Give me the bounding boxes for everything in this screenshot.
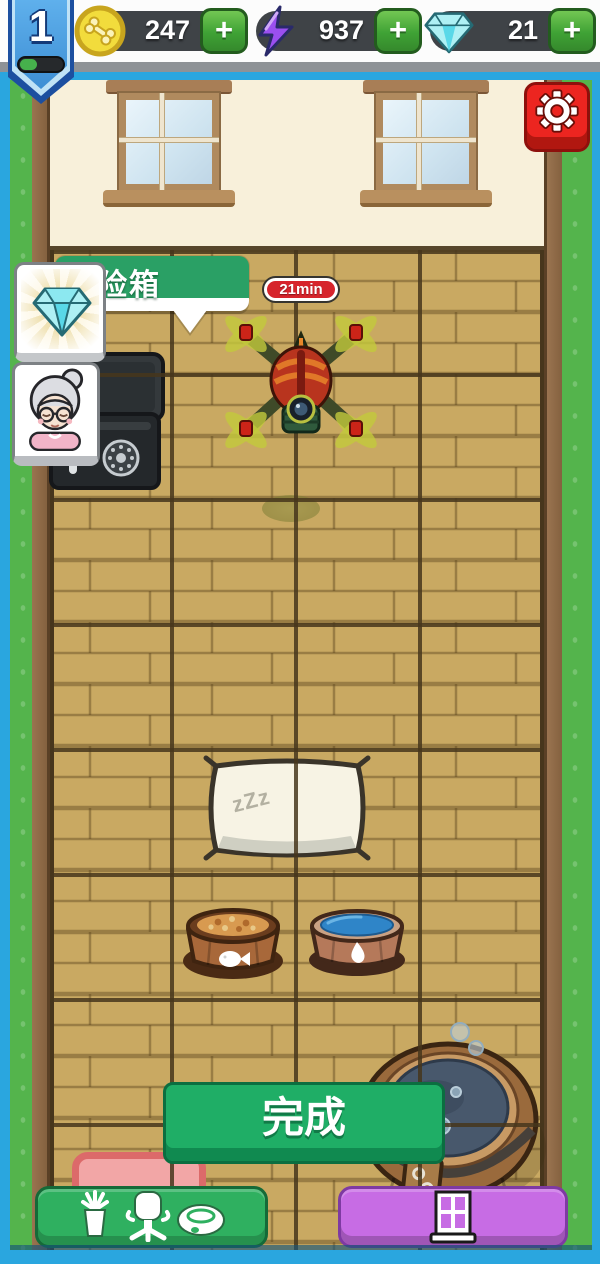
- frame-edge-bottom: [0, 1250, 600, 1264]
- food-bowl[interactable]: [180, 895, 286, 981]
- level-badge: 1: [8, 0, 74, 104]
- reward-card: [14, 262, 106, 362]
- wall-window-left: [113, 80, 225, 206]
- plant-icon: [83, 1192, 107, 1236]
- game-screen: zZz: [0, 0, 600, 1264]
- coins-value: 247: [145, 15, 190, 46]
- window-mullion: [376, 137, 476, 143]
- water-bowl[interactable]: [306, 898, 408, 978]
- grass-right: [562, 80, 592, 1250]
- safe-dial: [104, 441, 138, 475]
- gem-icon: [424, 9, 474, 55]
- level-value: 1: [8, 2, 74, 52]
- frame-edge-right: [592, 72, 600, 1264]
- bone-coin-icon: [74, 5, 126, 57]
- timer-badge-label: 21min: [267, 281, 335, 298]
- window-sill: [103, 190, 235, 207]
- complete-button[interactable]: 完成: [163, 1082, 445, 1164]
- timer-badge: 21min: [262, 276, 340, 303]
- window-lintel: [363, 80, 489, 94]
- house-wall-post-left: [32, 80, 50, 1250]
- window-sill: [360, 190, 492, 207]
- complete-button-label: 完成: [262, 1094, 346, 1141]
- window-icon: [429, 1190, 477, 1244]
- gems-counter: 21 +: [430, 11, 594, 51]
- wallpaper-button[interactable]: [338, 1186, 568, 1248]
- settings-button[interactable]: [524, 82, 590, 152]
- grass-left: [10, 80, 32, 1250]
- lightning-icon: [250, 5, 302, 57]
- window-lintel: [106, 80, 232, 94]
- top-bar-shadow: [0, 62, 600, 72]
- grandma-avatar: [15, 365, 95, 451]
- gear-icon: [527, 84, 587, 138]
- add-coins-button[interactable]: +: [200, 8, 248, 54]
- tooltip-pointer: [173, 310, 207, 333]
- gem-icon: [32, 285, 92, 337]
- wall-window-right: [370, 80, 482, 206]
- pet-bowl-icon: [178, 1205, 224, 1235]
- chair-icon: [127, 1192, 168, 1240]
- frame-edge-left: [0, 72, 10, 1264]
- npc-avatar-card[interactable]: [12, 362, 100, 466]
- frame-edge-top: [0, 72, 600, 80]
- energy-counter: 937 +: [256, 11, 420, 51]
- drone-camera: [288, 396, 314, 422]
- energy-value: 937: [319, 15, 364, 46]
- level-progress-fill: [20, 59, 37, 70]
- coins-counter: 247 +: [80, 11, 246, 51]
- pet-pillow[interactable]: [202, 752, 372, 864]
- window-mullion: [119, 137, 219, 143]
- gems-value: 21: [508, 15, 538, 46]
- add-gems-button[interactable]: +: [548, 8, 596, 54]
- drone[interactable]: [222, 310, 380, 458]
- level-progress-bar: [17, 56, 65, 73]
- furniture-button[interactable]: [35, 1186, 268, 1248]
- add-energy-button[interactable]: +: [374, 8, 422, 54]
